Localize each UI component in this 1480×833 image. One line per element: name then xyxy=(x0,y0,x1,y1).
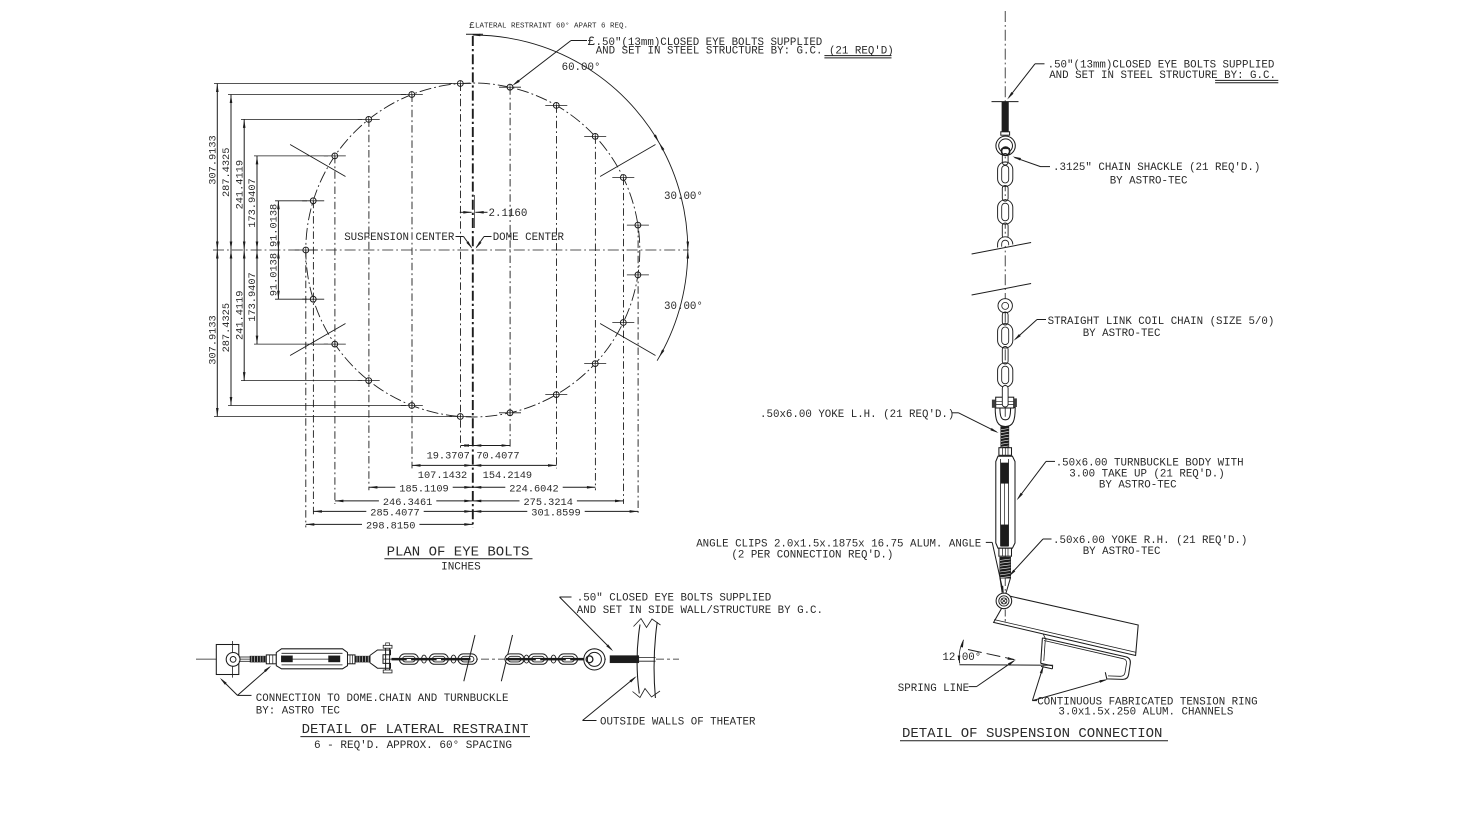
svg-text:173.9407: 173.9407 xyxy=(247,178,259,227)
svg-text:287.4325: 287.4325 xyxy=(221,303,233,352)
svg-text:CONNECTION TO DOME.CHAIN AND T: CONNECTION TO DOME.CHAIN AND TURNBUCKLE xyxy=(256,693,509,705)
svg-text:70.4077: 70.4077 xyxy=(476,451,519,463)
svg-text:.3125" CHAIN SHACKLE (21 REQ'D: .3125" CHAIN SHACKLE (21 REQ'D.) xyxy=(1053,162,1260,174)
svg-text:STRAIGHT LINK COIL CHAIN (SIZE: STRAIGHT LINK COIL CHAIN (SIZE 5/0) xyxy=(1048,316,1275,328)
svg-text:.50" CLOSED EYE BOLTS SUPPLIED: .50" CLOSED EYE BOLTS SUPPLIED xyxy=(577,592,771,604)
svg-text:6 - REQ'D. APPROX. 60° SPACING: 6 - REQ'D. APPROX. 60° SPACING xyxy=(314,740,512,752)
svg-text:91.0138: 91.0138 xyxy=(269,253,281,296)
svg-text:BY ASTRO-TEC: BY ASTRO-TEC xyxy=(1110,176,1188,188)
svg-text:301.8599: 301.8599 xyxy=(531,507,580,519)
svg-text:298.8150: 298.8150 xyxy=(366,520,415,532)
svg-text:107.1432: 107.1432 xyxy=(418,470,467,482)
svg-text:BY ASTRO-TEC: BY ASTRO-TEC xyxy=(1083,328,1161,340)
svg-text:3.0x1.5x.250 ALUM. CHANNELS: 3.0x1.5x.250 ALUM. CHANNELS xyxy=(1058,706,1233,718)
svg-text:OUTSIDE WALLS OF THEATER: OUTSIDE WALLS OF THEATER xyxy=(600,717,756,729)
svg-text:307.9133: 307.9133 xyxy=(208,315,220,364)
svg-text:307.9133: 307.9133 xyxy=(208,135,220,184)
svg-text:(2 PER CONNECTION REQ'D.): (2 PER CONNECTION REQ'D.) xyxy=(731,550,893,562)
svg-text:2.1160: 2.1160 xyxy=(489,208,528,220)
svg-text:12.00°: 12.00° xyxy=(942,652,981,664)
svg-text:241.4119: 241.4119 xyxy=(234,160,246,209)
svg-text:DETAIL OF LATERAL RESTRAINT: DETAIL OF LATERAL RESTRAINT xyxy=(302,722,529,738)
svg-text:224.6042: 224.6042 xyxy=(509,483,558,495)
svg-text:£: £ xyxy=(588,35,596,49)
svg-text:INCHES: INCHES xyxy=(441,561,481,573)
svg-text:LATERAL RESTRAINT 60° APART 6: LATERAL RESTRAINT 60° APART 6 REQ. xyxy=(475,22,628,31)
svg-text:.50x6.00 YOKE L.H. (21 REQ'D.): .50x6.00 YOKE L.H. (21 REQ'D.) xyxy=(760,409,954,421)
svg-text:91.0138: 91.0138 xyxy=(269,204,281,247)
svg-text:241.4119: 241.4119 xyxy=(234,291,246,340)
svg-text:30.00°: 30.00° xyxy=(664,301,703,313)
svg-text:DOME CENTER: DOME CENTER xyxy=(493,232,565,244)
svg-text:154.2149: 154.2149 xyxy=(483,470,532,482)
svg-text:PLAN OF EYE BOLTS: PLAN OF EYE BOLTS xyxy=(387,545,530,561)
svg-text:285.4077: 285.4077 xyxy=(370,507,419,519)
svg-text:BY ASTRO-TEC: BY ASTRO-TEC xyxy=(1083,546,1161,558)
svg-text:DETAIL OF SUSPENSION CONNECTIO: DETAIL OF SUSPENSION CONNECTION xyxy=(902,726,1162,742)
svg-text:185.1109: 185.1109 xyxy=(399,483,448,495)
svg-text:60.00°: 60.00° xyxy=(562,62,601,74)
svg-text:AND SET IN SIDE WALL/STRUCTURE: AND SET IN SIDE WALL/STRUCTURE BY G.C. xyxy=(577,605,823,617)
svg-text:287.4325: 287.4325 xyxy=(221,148,233,197)
svg-text:19.3707: 19.3707 xyxy=(427,451,470,463)
svg-text:SUSPENSION CENTER: SUSPENSION CENTER xyxy=(344,232,455,244)
svg-text:173.9407: 173.9407 xyxy=(247,272,259,321)
svg-text:BY ASTRO-TEC: BY ASTRO-TEC xyxy=(1099,479,1177,491)
svg-text:BY: ASTRO TEC: BY: ASTRO TEC xyxy=(256,705,341,717)
svg-text:SPRING LINE: SPRING LINE xyxy=(898,683,969,695)
svg-text:30.00°: 30.00° xyxy=(664,191,703,203)
